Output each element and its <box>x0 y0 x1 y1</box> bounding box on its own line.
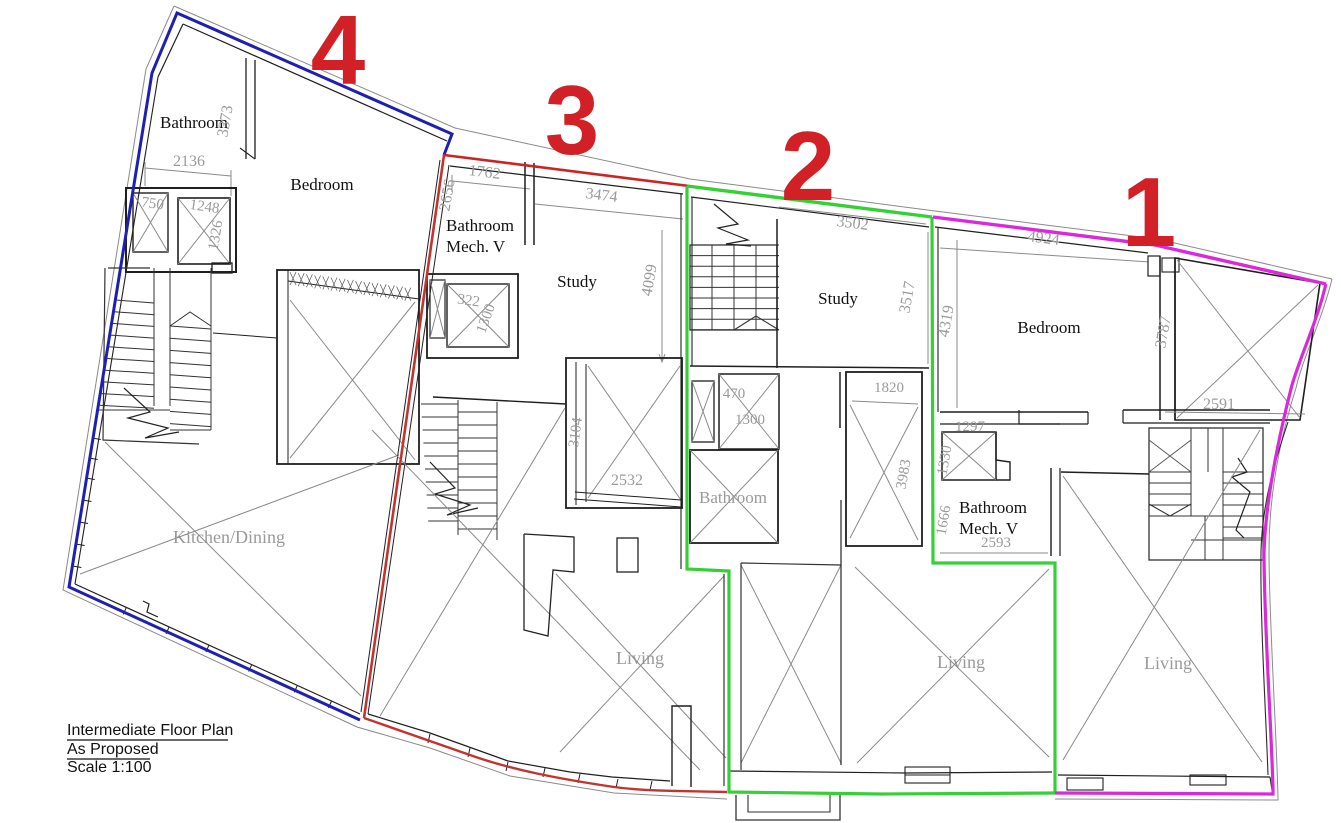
svg-text:2136: 2136 <box>173 153 205 170</box>
svg-text:2532: 2532 <box>611 472 643 489</box>
svg-text:Bathroom: Bathroom <box>959 498 1027 517</box>
svg-text:Bathroom: Bathroom <box>446 216 514 235</box>
svg-text:Intermediate Floor Plan: Intermediate Floor Plan <box>67 722 233 739</box>
svg-text:Mech. V: Mech. V <box>446 237 506 256</box>
svg-text:470: 470 <box>723 386 746 402</box>
svg-text:Kitchen/Dining: Kitchen/Dining <box>173 527 285 547</box>
svg-text:750: 750 <box>140 195 165 214</box>
svg-text:4: 4 <box>311 0 366 105</box>
svg-text:322: 322 <box>456 292 481 311</box>
svg-text:1820: 1820 <box>874 380 904 396</box>
svg-text:2593: 2593 <box>981 535 1011 551</box>
svg-text:Bedroom: Bedroom <box>1017 318 1080 337</box>
svg-text:Living: Living <box>1144 653 1192 673</box>
svg-text:1: 1 <box>1122 157 1177 267</box>
svg-text:1300: 1300 <box>735 412 765 428</box>
svg-text:As Proposed: As Proposed <box>67 741 159 758</box>
svg-text:2: 2 <box>781 111 836 221</box>
svg-text:Bedroom: Bedroom <box>290 175 353 194</box>
svg-text:Study: Study <box>557 272 597 291</box>
svg-text:Study: Study <box>818 289 858 308</box>
svg-text:Scale 1:100: Scale 1:100 <box>67 759 152 776</box>
svg-text:Bathroom: Bathroom <box>699 488 767 507</box>
svg-text:3: 3 <box>545 65 600 175</box>
svg-text:1297: 1297 <box>955 419 986 435</box>
